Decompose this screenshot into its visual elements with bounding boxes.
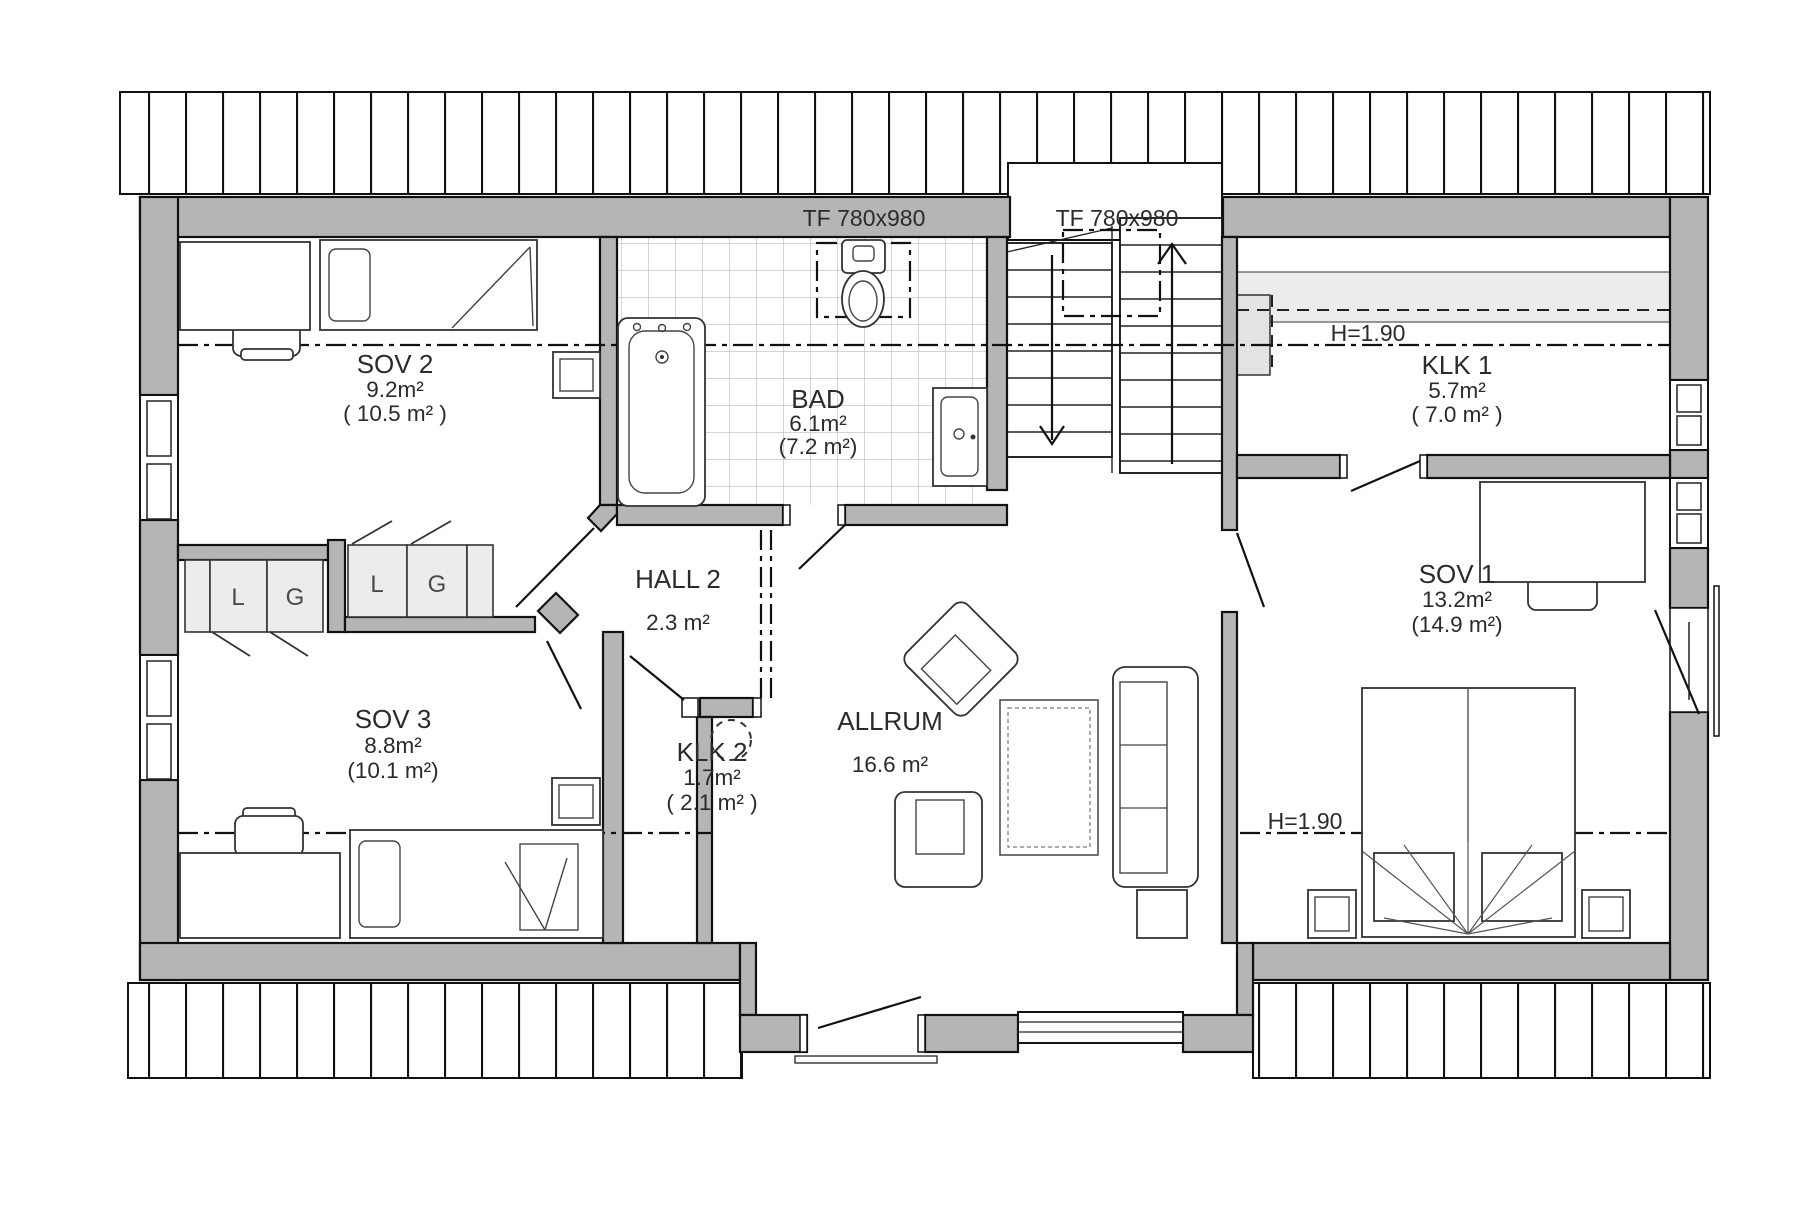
label-bad-name: BAD <box>791 384 844 414</box>
label-hall2-name: HALL 2 <box>635 564 721 594</box>
wall-stair-west <box>987 237 1007 490</box>
bed-double <box>1362 688 1575 937</box>
label-klk2-gross: ( 2.1 m² ) <box>666 790 757 815</box>
window-allrum-dormer <box>1018 1012 1183 1043</box>
label-sov1-gross: (14.9 m²) <box>1411 612 1502 637</box>
dormer-wall-east <box>1237 943 1253 1015</box>
armchair <box>895 792 982 887</box>
dormer-wall-west <box>740 943 756 1015</box>
label-sov3-area: 8.8m² <box>364 733 422 758</box>
desk <box>180 242 310 330</box>
roof-hatch-bottom-right <box>1253 983 1710 1078</box>
label-klk2-name: KLK 2 <box>677 737 748 767</box>
wall-bad-south-east <box>845 505 1007 525</box>
wall-east-b <box>1670 450 1708 478</box>
wall-south-left <box>140 943 740 980</box>
bathtub <box>618 318 705 506</box>
desk <box>1480 482 1645 582</box>
wall-sov1-west <box>1222 612 1237 943</box>
wall-north-right <box>1223 197 1670 237</box>
dormer-wall-south-b <box>925 1015 1018 1052</box>
label-bad-area: 6.1m² <box>789 411 847 436</box>
window-sov3-west <box>140 655 178 780</box>
stair-flight-down <box>1007 243 1112 457</box>
wall-south-right <box>1253 943 1670 980</box>
floor-plan-drawing: L G L G <box>0 0 1809 1210</box>
label-sov2-name: SOV 2 <box>357 349 434 379</box>
floor-plan-page: L G L G <box>0 0 1809 1210</box>
wall-wardrobe-a <box>178 545 328 560</box>
label-sov1-area: 13.2m² <box>1422 587 1493 612</box>
side-table <box>1137 890 1187 938</box>
klk1-cabinet <box>1237 295 1270 375</box>
label-roof-window-stair: TF 780x980 <box>1056 205 1179 231</box>
wall-east-d <box>1670 712 1708 980</box>
wall-sov3-klk2 <box>603 632 623 943</box>
sofa <box>1113 667 1198 887</box>
label-height-lower: H=1.90 <box>1268 808 1343 834</box>
closet-label: G <box>428 571 447 598</box>
wall-wardrobe-step <box>328 540 345 632</box>
label-roof-window-bad: TF 780x980 <box>803 205 926 231</box>
balcony-railing <box>1714 586 1719 736</box>
dormer-wall-south-c <box>1183 1015 1253 1052</box>
wall-east-a <box>1670 197 1708 380</box>
label-klk1-gross: ( 7.0 m² ) <box>1411 402 1502 427</box>
wall-west-b <box>140 520 178 655</box>
closet-label: L <box>370 571 383 598</box>
rug <box>1000 700 1098 855</box>
bed-single <box>350 830 603 938</box>
window-sov2-west <box>140 395 178 520</box>
wall-klk2-north <box>700 698 753 717</box>
label-hall2-area: 2.3 m² <box>646 610 710 635</box>
wall-bad-south <box>617 505 783 525</box>
label-klk1-area: 5.7m² <box>1428 378 1486 403</box>
label-sov3-name: SOV 3 <box>355 704 432 734</box>
dormer-wall-south-a <box>740 1015 807 1052</box>
label-allrum-area: 16.6 m² <box>852 752 929 777</box>
wall-east-c <box>1670 548 1708 608</box>
desk <box>180 853 340 938</box>
label-klk2-area: 1.7m² <box>683 765 741 790</box>
label-sov1-name: SOV 1 <box>1419 559 1496 589</box>
window-sov1-east <box>1670 478 1708 548</box>
sink-cabinet <box>933 388 987 486</box>
label-sov3-gross: (10.1 m²) <box>347 758 438 783</box>
toilet <box>842 240 885 327</box>
window-klk1-east <box>1670 380 1708 450</box>
label-bad-gross: (7.2 m²) <box>779 434 858 459</box>
label-sov2-gross: ( 10.5 m² ) <box>343 401 447 426</box>
label-klk1-name: KLK 1 <box>1422 350 1493 380</box>
wall-klk1-west-upper <box>1222 237 1237 530</box>
label-sov2-area: 9.2m² <box>366 377 424 402</box>
wall-klk1-south-b <box>1427 455 1670 478</box>
label-allrum-name: ALLRUM <box>837 706 942 736</box>
wall-west-a <box>140 197 178 395</box>
closet-label: L <box>231 584 244 611</box>
entry-threshold <box>795 1056 937 1063</box>
roof-hatch-top <box>120 92 1710 194</box>
roof-hatch-bottom-left <box>128 983 742 1078</box>
label-height-upper: H=1.90 <box>1331 320 1406 346</box>
wall-wardrobe-b <box>345 617 535 632</box>
bed-single <box>320 240 537 330</box>
wall-klk1-south-a <box>1237 455 1340 478</box>
closet-label: G <box>286 584 305 611</box>
chair <box>235 816 303 856</box>
wall-sov2-bad <box>600 237 617 505</box>
